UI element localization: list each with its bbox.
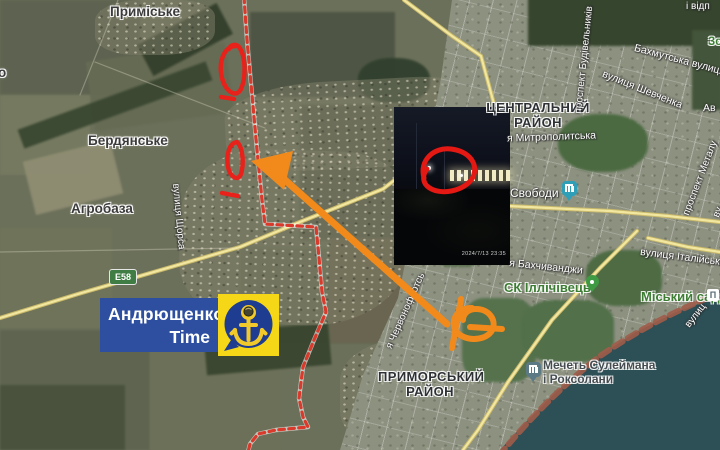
route-badge-e58: E58 xyxy=(109,269,137,285)
town-label-berdianske: Бердянське xyxy=(88,133,168,148)
town-label-partial: о xyxy=(0,65,6,80)
district-label-prymorskyi: ПРИМОРСЬКИЙ РАЙОН xyxy=(378,370,482,399)
street-label-svobody: Свободи xyxy=(510,186,559,200)
town-label-ahrobaza: Агробаза xyxy=(71,201,133,216)
building-icon xyxy=(526,362,541,377)
forest-patch xyxy=(0,385,125,450)
photo-timestamp: 2024/7/13 23:35 xyxy=(462,251,506,257)
mosque-pin[interactable] xyxy=(525,362,541,382)
mosque-line2: і Роксолани xyxy=(543,372,613,386)
building-icon xyxy=(562,181,577,196)
district-central-line2: РАЙОН xyxy=(514,115,562,130)
logo-title: Андрющенко xyxy=(108,304,210,325)
district-prymorskyi-line1: ПРИМОРСЬКИЙ xyxy=(378,369,484,384)
map-canvas[interactable]: 2024/7/13 23:35 Приміське Бердянське Агр… xyxy=(0,0,720,450)
park-patch xyxy=(522,300,614,362)
logo-subtitle: Time xyxy=(108,327,210,348)
poi-label-sk-illichivets: СК Іллічівець xyxy=(504,280,591,295)
field-patch xyxy=(0,228,112,328)
green-dot-icon xyxy=(586,275,599,288)
parking-icon[interactable]: П xyxy=(707,289,719,301)
svobody-poi-pin[interactable] xyxy=(561,181,577,201)
anchor-emblem-icon xyxy=(218,294,279,356)
district-prymorskyi-line2: РАЙОН xyxy=(406,384,454,399)
logo-text-box: Андрющенко Time xyxy=(100,298,218,352)
town-label-prymiske: Приміське xyxy=(110,4,180,19)
logo-emblem-box xyxy=(218,294,279,356)
street-label-vidp-partial: і відп xyxy=(686,1,710,12)
street-label-av-partial: Ав xyxy=(703,102,716,114)
channel-logo: Андрющенко Time xyxy=(100,294,279,356)
poi-label-mosque: Мечеть Сулеймана і Роксолани xyxy=(543,359,655,387)
inset-photo: 2024/7/13 23:35 xyxy=(394,107,510,265)
sk-illichivets-pin[interactable] xyxy=(584,275,600,292)
park-label-zo-partial: Зо xyxy=(708,36,720,48)
photo-red-circle xyxy=(394,107,510,265)
mosque-line1: Мечеть Сулеймана xyxy=(543,358,655,372)
